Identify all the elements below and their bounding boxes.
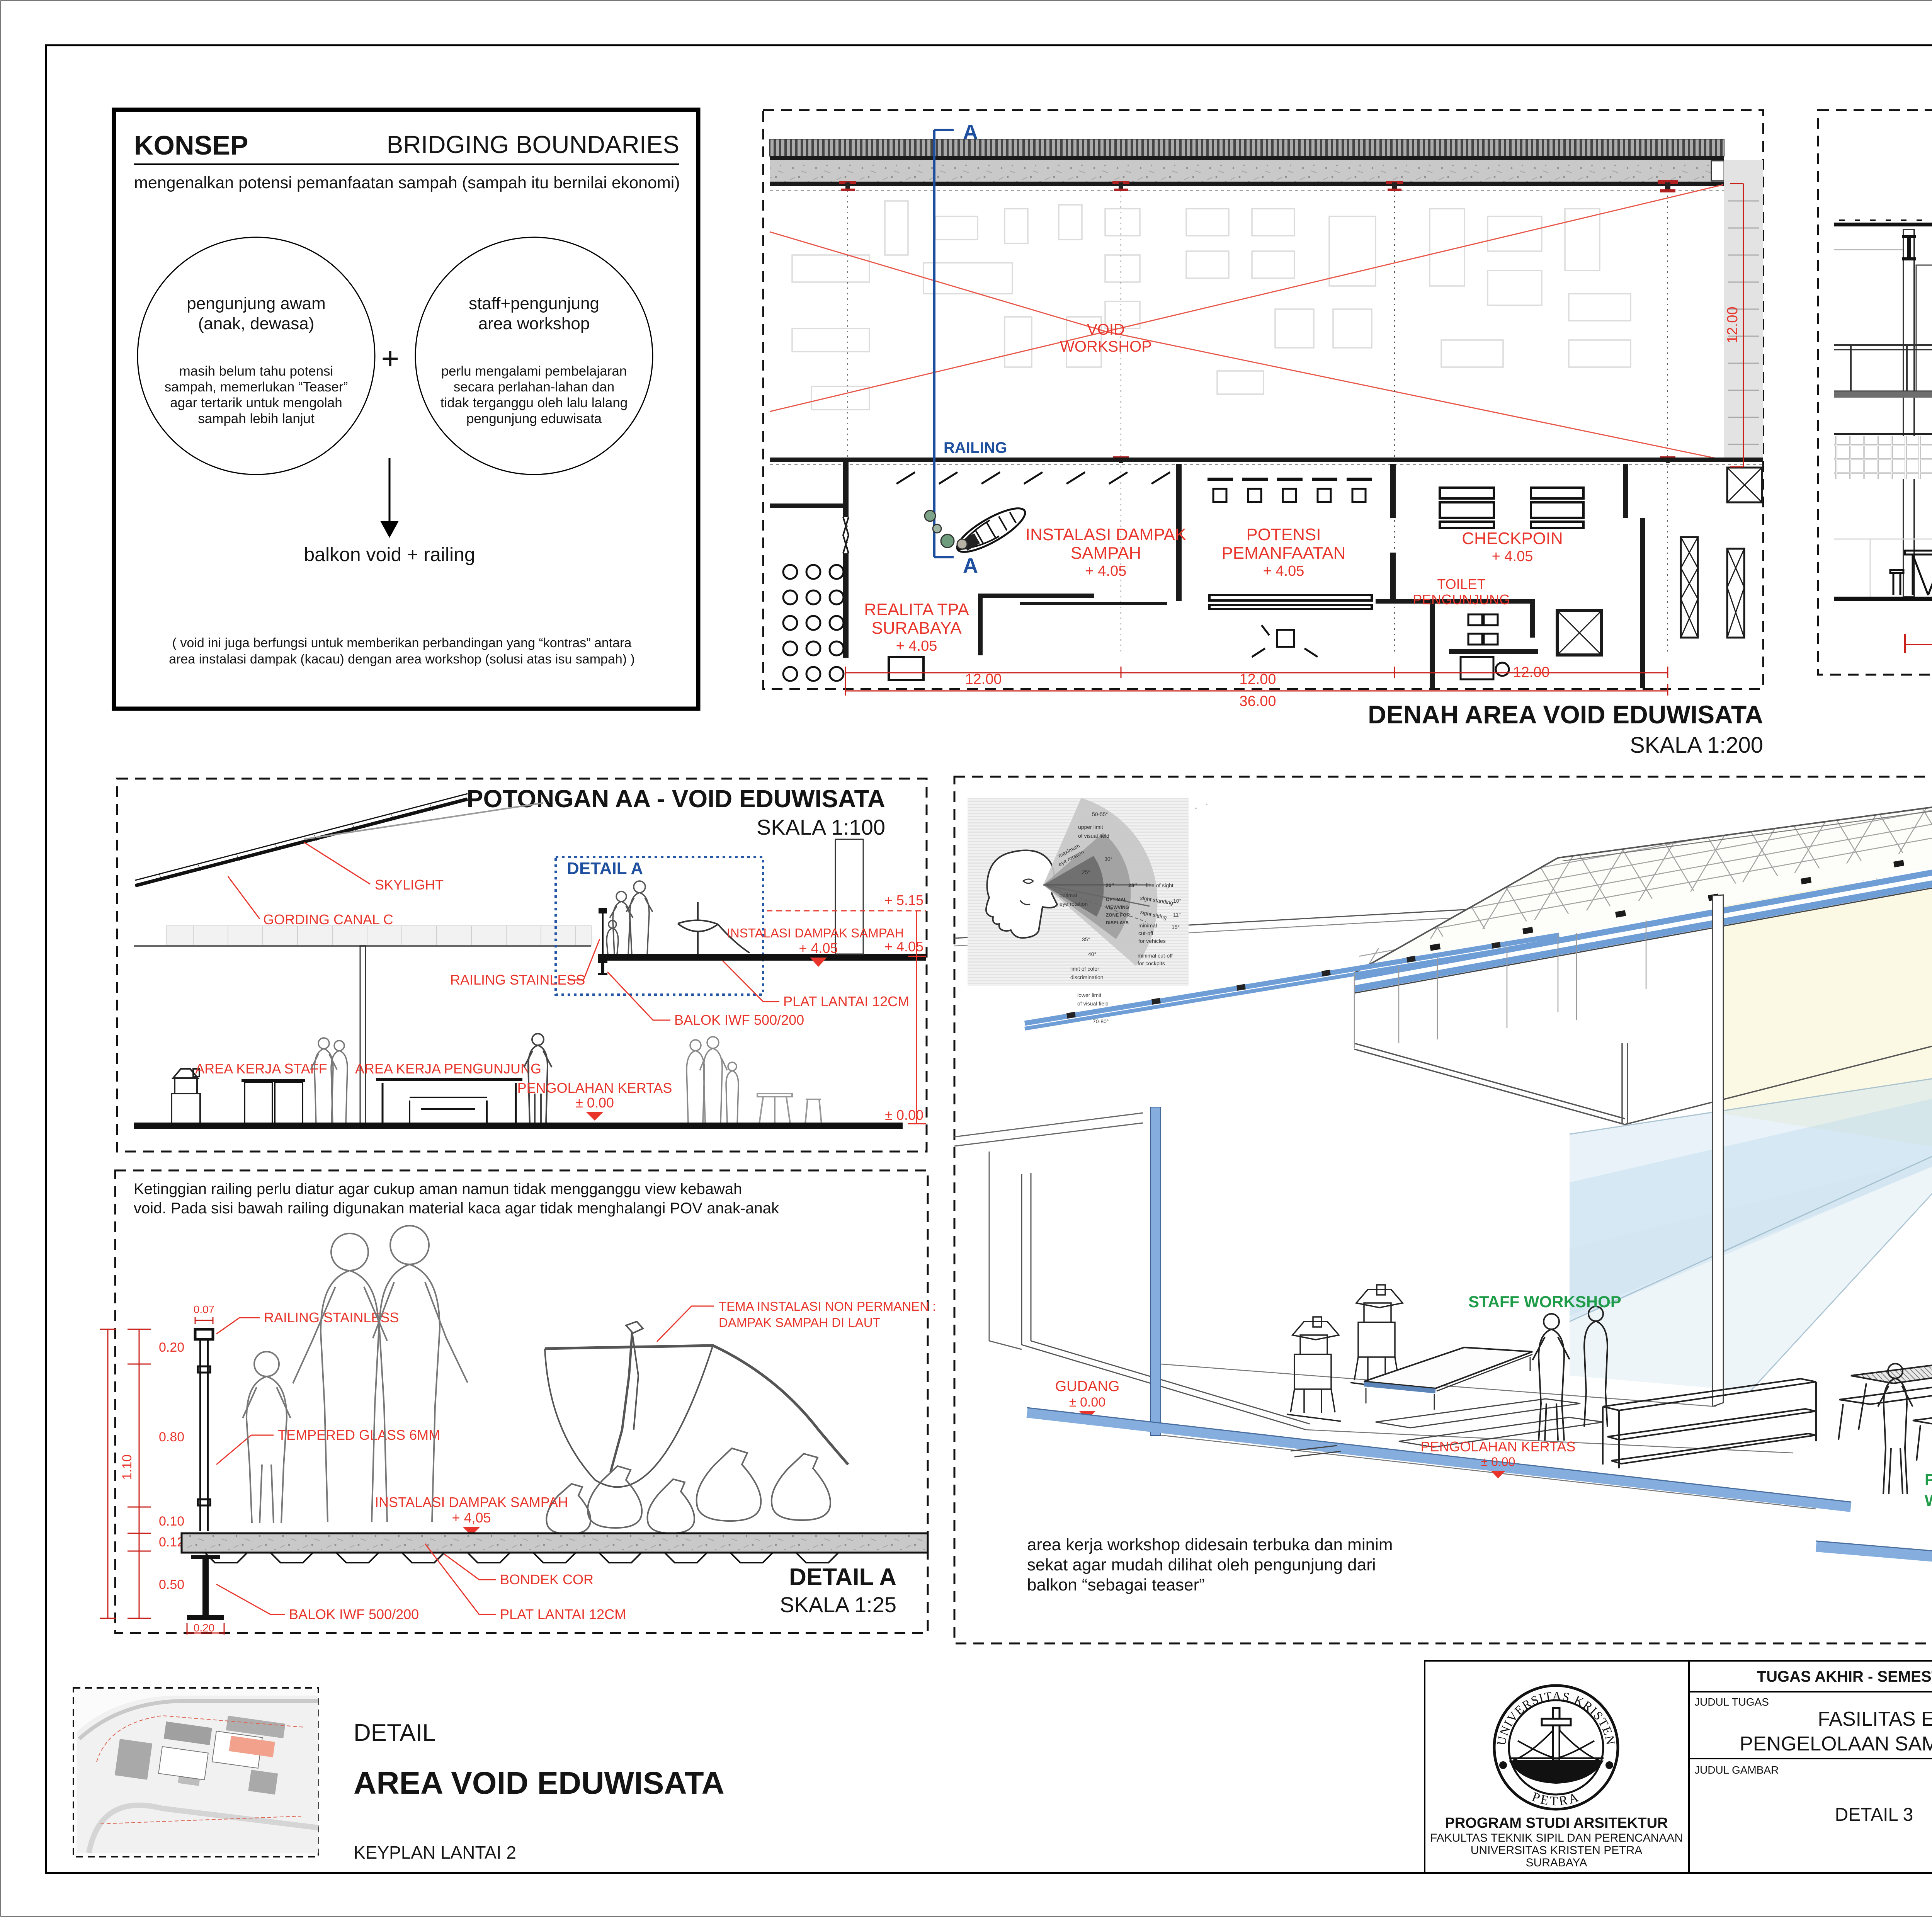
svg-text:INSTALASI DAMPAK SAMPAH: INSTALASI DAMPAK SAMPAH [375, 1494, 568, 1510]
svg-text:TEMA INSTALASI NON PERMANEN :: TEMA INSTALASI NON PERMANEN : [719, 1299, 936, 1313]
svg-text:DISPLAYS: DISPLAYS [1106, 920, 1129, 925]
svg-text:SAMPAH: SAMPAH [1071, 544, 1141, 563]
svg-text:minimal cut-off: minimal cut-off [1138, 953, 1173, 959]
svg-text:tidak terganggu oleh lalu lala: tidak terganggu oleh lalu lalang [440, 395, 628, 410]
svg-text:PENGOLAHAN KERTAS: PENGOLAHAN KERTAS [1421, 1439, 1576, 1454]
svg-text:DENAH AREA VOID EDUWISATA: DENAH AREA VOID EDUWISATA [1368, 700, 1763, 729]
svg-text:staff+pengunjung: staff+pengunjung [469, 294, 599, 313]
svg-text:TUGAS AKHIR - SEMESTER GENAP 2: TUGAS AKHIR - SEMESTER GENAP 2023/2024 [1757, 1668, 1932, 1685]
svg-text:0.50: 0.50 [159, 1577, 184, 1592]
svg-text:SKYLIGHT: SKYLIGHT [375, 877, 444, 893]
svg-text:UNIVERSITAS KRISTEN PETRA: UNIVERSITAS KRISTEN PETRA [1471, 1844, 1643, 1857]
svg-text:area workshop: area workshop [478, 314, 590, 333]
svg-text:lower limit: lower limit [1077, 992, 1101, 998]
svg-text:limit of color: limit of color [1070, 966, 1099, 972]
svg-text:0.10: 0.10 [159, 1514, 184, 1529]
svg-text:0.07: 0.07 [194, 1303, 215, 1315]
svg-text:10°: 10° [1173, 898, 1181, 904]
svg-text:FASILITAS EDUWISATA: FASILITAS EDUWISATA [1818, 1708, 1932, 1730]
svg-text:INSTALASI DAMPAK: INSTALASI DAMPAK [1026, 525, 1186, 544]
svg-text:+ 4.05: + 4.05 [1492, 548, 1533, 565]
svg-text:DETAIL A: DETAIL A [567, 859, 643, 878]
svg-text:DETAIL 3: DETAIL 3 [1835, 1805, 1913, 1825]
svg-text:pengunjung eduwisata: pengunjung eduwisata [466, 411, 602, 426]
svg-text:GUDANG: GUDANG [1055, 1378, 1120, 1395]
svg-text:+ 4.05: + 4.05 [1085, 563, 1127, 579]
svg-text:A: A [963, 554, 978, 577]
svg-text:FAKULTAS TEKNIK SIPIL DAN PERE: FAKULTAS TEKNIK SIPIL DAN PERENCANAAN [1430, 1832, 1683, 1844]
svg-text:PROGRAM STUDI ARSITEKTUR: PROGRAM STUDI ARSITEKTUR [1445, 1815, 1668, 1831]
svg-text:0.20: 0.20 [194, 1622, 215, 1634]
svg-text:30°: 30° [1104, 856, 1112, 862]
svg-text:12.00: 12.00 [1725, 306, 1741, 343]
svg-text:CHECKPOIN: CHECKPOIN [1462, 529, 1563, 548]
svg-text:0.80: 0.80 [159, 1430, 184, 1444]
svg-text:11°: 11° [1173, 912, 1181, 918]
svg-text:area instalasi dampak (kacau): area instalasi dampak (kacau) dengan are… [169, 652, 635, 667]
svg-text:SURABAYA: SURABAYA [1526, 1856, 1587, 1869]
svg-text:28″: 28″ [1128, 882, 1137, 888]
svg-text:INSTALASI DAMPAK SAMPAH: INSTALASI DAMPAK SAMPAH [727, 926, 904, 940]
svg-text:Ketinggian railing perlu diatu: Ketinggian railing perlu diatur agar cuk… [134, 1180, 742, 1197]
svg-text:secara perlahan-lahan dan: secara perlahan-lahan dan [454, 379, 614, 395]
svg-text:+ 5.15: + 5.15 [884, 892, 923, 908]
svg-text:AREA KERJA STAFF: AREA KERJA STAFF [195, 1061, 327, 1077]
svg-text:BALOK IWF 500/200: BALOK IWF 500/200 [674, 1012, 804, 1028]
svg-text:balkon “sebagai teaser”: balkon “sebagai teaser” [1027, 1575, 1205, 1594]
svg-text:OPTIMAL: OPTIMAL [1106, 897, 1127, 902]
svg-text:SKALA 1:200: SKALA 1:200 [1630, 733, 1763, 758]
svg-text:( void ini juga berfungsi untu: ( void ini juga berfungsi untuk memberik… [172, 636, 632, 650]
svg-text:+ 4.05: + 4.05 [896, 638, 937, 654]
svg-text:40°: 40° [1088, 951, 1096, 957]
svg-text:0.20: 0.20 [159, 1340, 184, 1355]
svg-text:0.12: 0.12 [159, 1535, 184, 1550]
svg-text:POTONGAN AA - VOID EDUWISATA: POTONGAN AA - VOID EDUWISATA [467, 785, 885, 813]
svg-text:70-80°: 70-80° [1093, 1018, 1109, 1024]
svg-text:+ 4.05: + 4.05 [799, 940, 838, 956]
svg-text:PEMANFAATAN: PEMANFAATAN [1221, 544, 1345, 563]
svg-text:± 0.00: ± 0.00 [575, 1095, 614, 1111]
svg-text:A: A [963, 121, 978, 144]
svg-text:AREA VOID EDUWISATA: AREA VOID EDUWISATA [354, 1766, 724, 1801]
svg-text:DETAIL A: DETAIL A [789, 1564, 896, 1590]
svg-text:SKALA 1:25: SKALA 1:25 [780, 1592, 896, 1617]
svg-text:36.00: 36.00 [1239, 693, 1276, 709]
svg-text:15°: 15° [1172, 924, 1180, 930]
svg-text:agar tertarik untuk mengolah: agar tertarik untuk mengolah [170, 395, 342, 410]
svg-text:for cockpits: for cockpits [1138, 960, 1165, 966]
svg-text:SKALA 1:100: SKALA 1:100 [757, 815, 885, 839]
svg-text:discrimination: discrimination [1070, 974, 1104, 980]
svg-text:DAMPAK SAMPAH DI LAUT: DAMPAK SAMPAH DI LAUT [719, 1315, 881, 1330]
svg-text:REALITA TPA: REALITA TPA [864, 600, 969, 619]
svg-text:masih belum tahu potensi: masih belum tahu potensi [179, 364, 333, 379]
svg-text:PLAT LANTAI 12CM: PLAT LANTAI 12CM [783, 993, 909, 1009]
svg-text:PLAT LANTAI 12CM: PLAT LANTAI 12CM [500, 1606, 626, 1622]
svg-text:BALOK IWF 500/200: BALOK IWF 500/200 [289, 1606, 419, 1622]
svg-text:perlu mengalami pembelajaran: perlu mengalami pembelajaran [441, 364, 627, 379]
svg-text:area kerja workshop didesain t: area kerja workshop didesain terbuka dan… [1027, 1535, 1393, 1554]
svg-text:20″: 20″ [1105, 882, 1114, 888]
svg-text:+ 4.05: + 4.05 [884, 939, 923, 954]
svg-text:PENGUNJUNG: PENGUNJUNG [1925, 1470, 1932, 1488]
svg-text:of visual field: of visual field [1078, 833, 1109, 839]
svg-text:WORKSHOP: WORKSHOP [1060, 338, 1152, 355]
svg-text:eye rotation: eye rotation [1060, 901, 1088, 907]
svg-text:sampah lebih lanjut: sampah lebih lanjut [198, 411, 315, 426]
svg-text:25°: 25° [1082, 869, 1090, 875]
svg-text:50-55°: 50-55° [1092, 811, 1108, 817]
svg-text:sampah, memerlukan “Teaser”: sampah, memerlukan “Teaser” [165, 379, 348, 395]
svg-text:mengenalkan potensi pemanfaata: mengenalkan potensi pemanfaatan sampah (… [134, 173, 680, 192]
svg-text:minimal: minimal [1138, 922, 1157, 929]
svg-text:cut-off: cut-off [1138, 930, 1153, 936]
svg-text:12.00: 12.00 [1239, 671, 1276, 687]
svg-text:GORDING CANAL C: GORDING CANAL C [263, 912, 393, 927]
svg-text:balkon void + railing: balkon void + railing [304, 544, 475, 565]
svg-text:RAILING: RAILING [944, 439, 1007, 456]
svg-text:sekat agar mudah dilihat oleh: sekat agar mudah dilihat oleh pengunjung… [1027, 1555, 1376, 1574]
svg-text:1.10: 1.10 [120, 1454, 134, 1480]
svg-text:TEMPERED GLASS 6MM: TEMPERED GLASS 6MM [278, 1427, 440, 1443]
svg-text:STAFF WORKSHOP: STAFF WORKSHOP [1468, 1293, 1621, 1311]
svg-text:VIEWVING: VIEWVING [1106, 905, 1129, 910]
svg-text:VOID: VOID [1087, 321, 1125, 338]
svg-text:JUDUL TUGAS: JUDUL TUGAS [1694, 1696, 1769, 1708]
svg-text:DETAIL: DETAIL [354, 1720, 435, 1746]
svg-text:AREA KERJA PENGUNJUNG: AREA KERJA PENGUNJUNG [355, 1061, 541, 1077]
svg-text:of visual field: of visual field [1077, 1000, 1109, 1007]
svg-text:SURABAYA: SURABAYA [871, 619, 962, 638]
svg-text:12.00: 12.00 [1513, 664, 1549, 680]
svg-text:± 0.00: ± 0.00 [1069, 1395, 1105, 1410]
svg-text:± 0.00: ± 0.00 [885, 1107, 923, 1123]
svg-text:WORKSHOP: WORKSHOP [1925, 1492, 1932, 1510]
svg-text:RAILING STAINLESS: RAILING STAINLESS [450, 972, 585, 988]
svg-text:+ 4.05: + 4.05 [1263, 563, 1304, 579]
svg-text:pengunjung awam: pengunjung awam [187, 294, 326, 313]
svg-text:KONSEP: KONSEP [134, 130, 248, 160]
svg-text:PENGOLAHAN KERTAS: PENGOLAHAN KERTAS [517, 1080, 672, 1096]
svg-text:+: + [381, 341, 400, 376]
svg-text:optimal: optimal [1060, 892, 1077, 898]
svg-text:± 0.00: ± 0.00 [1481, 1455, 1515, 1469]
svg-text:upper limit: upper limit [1078, 824, 1103, 830]
svg-text:JUDUL GAMBAR: JUDUL GAMBAR [1694, 1764, 1779, 1776]
svg-text:BRIDGING BOUNDARIES: BRIDGING BOUNDARIES [387, 131, 679, 158]
svg-text:PENGUNJUNG: PENGUNJUNG [1413, 592, 1510, 607]
svg-text:PENGELOLAAN SAMPAH DI SURABAYA: PENGELOLAAN SAMPAH DI SURABAYA [1740, 1733, 1932, 1755]
svg-text:POTENSI: POTENSI [1246, 525, 1321, 544]
svg-text:35°: 35° [1082, 936, 1090, 942]
svg-text:12.00: 12.00 [965, 671, 1002, 687]
svg-text:BONDEK COR: BONDEK COR [500, 1572, 594, 1587]
svg-text:KEYPLAN LANTAI 2: KEYPLAN LANTAI 2 [354, 1842, 516, 1863]
svg-text:for vehicles: for vehicles [1138, 938, 1166, 944]
svg-text:ZONE FOR: ZONE FOR [1106, 912, 1130, 918]
svg-text:+ 4,05: + 4,05 [452, 1510, 491, 1526]
svg-text:line of sight: line of sight [1146, 882, 1173, 888]
svg-text:void. Pada sisi bawah railing: void. Pada sisi bawah railing digunakan … [134, 1200, 779, 1217]
svg-text:(anak, dewasa): (anak, dewasa) [198, 314, 315, 333]
svg-text:TOILET: TOILET [1437, 576, 1485, 592]
